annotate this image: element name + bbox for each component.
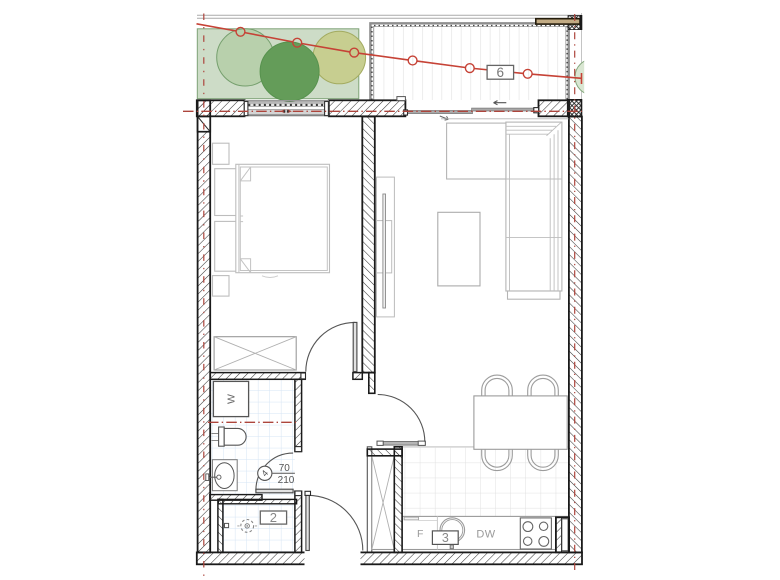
svg-text:W: W xyxy=(226,394,238,404)
svg-text:6: 6 xyxy=(497,65,505,80)
svg-text:2: 2 xyxy=(270,510,277,525)
svg-text:70: 70 xyxy=(279,463,291,474)
svg-text:3: 3 xyxy=(442,531,449,545)
svg-text:210: 210 xyxy=(278,475,295,486)
svg-text:DW: DW xyxy=(476,528,495,540)
svg-text:F: F xyxy=(417,528,423,540)
